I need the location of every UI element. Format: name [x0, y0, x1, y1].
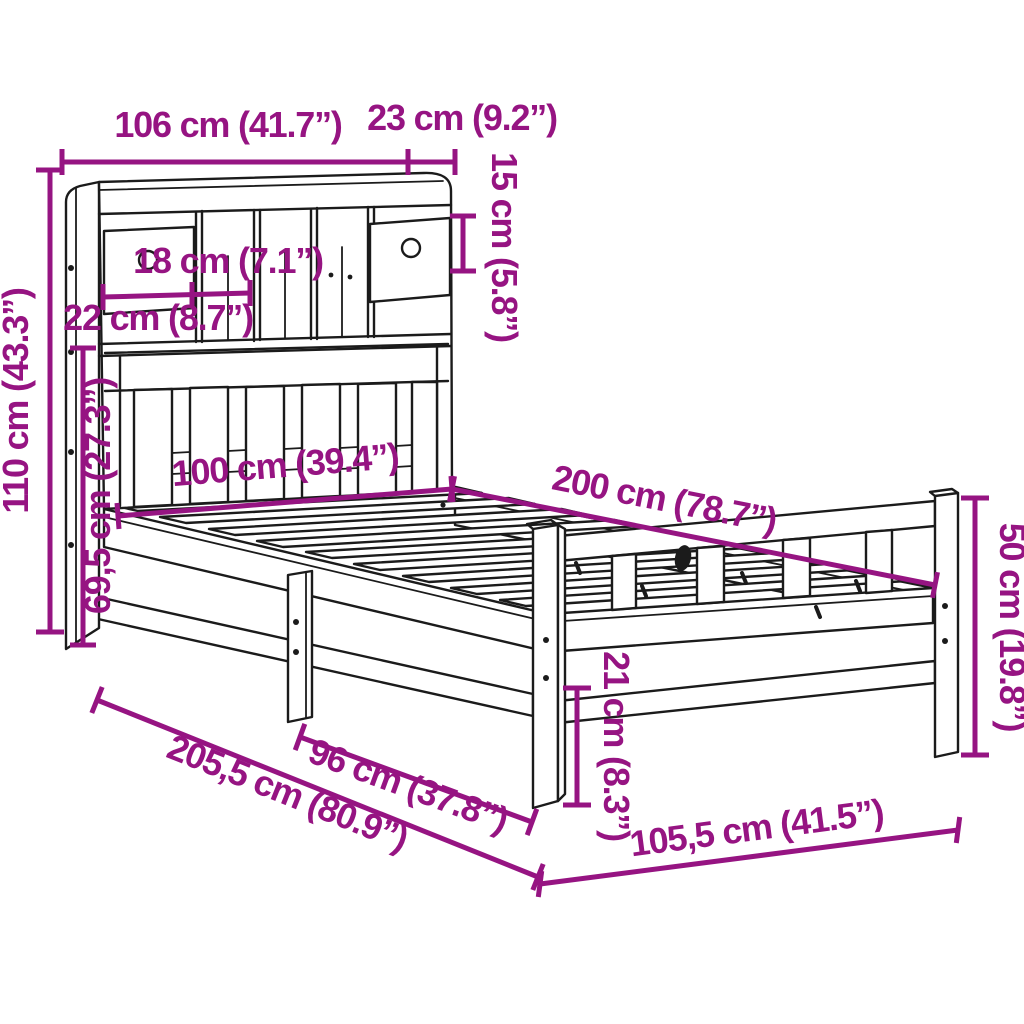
dim-label-compartment-width: 18 cm (7.1”)	[133, 240, 323, 281]
footboard-baluster	[612, 554, 636, 610]
footboard-baluster	[783, 538, 810, 598]
dim-under-bed-clearance: 21 cm (8.3”)	[563, 651, 637, 841]
dim-label-headboard-depth: 23 cm (9.2”)	[367, 97, 557, 138]
dim-shelf-height: 15 cm (5.8”)	[450, 152, 525, 342]
dim-label-shelf-height: 15 cm (5.8”)	[484, 152, 525, 342]
footboard-baluster	[697, 546, 724, 604]
drawer-right	[370, 218, 450, 302]
dim-headboard-height: 110 cm (43.3”)	[0, 170, 64, 632]
dim-label-under-bed-clearance: 21 cm (8.3”)	[596, 651, 637, 841]
footboard-far-leg	[935, 493, 958, 757]
mid-leg	[288, 571, 312, 722]
dim-label-headboard-width: 106 cm (41.7”)	[114, 104, 342, 145]
dim-label-foot-end-width: 105,5 cm (41.5”)	[627, 791, 885, 865]
dim-label-footboard-height: 50 cm (19.8”)	[992, 523, 1024, 732]
bed-dimension-drawing: 106 cm (41.7”) 23 cm (9.2”) 15 cm (5.8”)…	[0, 0, 1024, 1024]
product-dimension-diagram: 106 cm (41.7”) 23 cm (9.2”) 15 cm (5.8”)…	[0, 0, 1024, 1024]
dim-headboard-width: 106 cm (41.7”)	[62, 104, 408, 175]
footboard-baluster	[866, 530, 892, 593]
dim-headboard-lower-height: 69,5 cm (27.3”)	[70, 348, 118, 645]
dim-label-headboard-height: 110 cm (43.3”)	[0, 288, 36, 514]
dim-label-drawer-width: 22 cm (8.7”)	[63, 297, 253, 338]
dim-label-headboard-lower-height: 69,5 cm (27.3”)	[77, 378, 118, 614]
footboard-near-leg	[533, 525, 558, 808]
dim-footboard-height: 50 cm (19.8”)	[961, 498, 1024, 755]
